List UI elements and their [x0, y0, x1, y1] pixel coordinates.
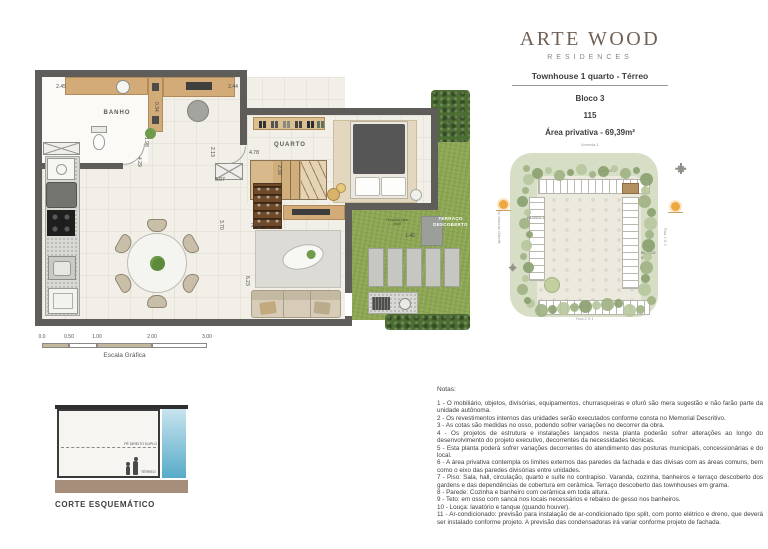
paver	[425, 248, 441, 287]
wall	[345, 203, 438, 210]
note-item: 7 - Piso: Sala, hall, circulação, quarto…	[437, 474, 763, 489]
tree	[643, 252, 652, 261]
schematic-section: PÉ DIREITO DUPLO TÉRREO CORTE ESQUEMÁTIC…	[55, 400, 240, 512]
header: ARTE WOOD RESIDENCES Townhouse 1 quarto …	[495, 28, 685, 137]
wall	[35, 70, 42, 326]
double-height-label: PÉ DIREITO DUPLO	[101, 442, 157, 446]
bathroom-label: BANHO	[87, 110, 147, 116]
tree	[601, 298, 614, 311]
note-item: 5 - Esta planta poderá sofrer variações …	[437, 445, 763, 460]
tree	[633, 167, 640, 174]
note-item: 9 - Teto: em osso com sanca nos locais n…	[437, 496, 763, 503]
kitchen-sink	[48, 256, 76, 280]
dimension: 0.34	[152, 98, 159, 116]
tree	[517, 196, 528, 207]
wall	[345, 316, 352, 326]
washbasin	[116, 80, 130, 94]
floor-plan: TERRAÇO DESCOBERTO Previsão para ofurô B…	[35, 68, 470, 330]
dimension: 2.39	[275, 161, 282, 179]
terrace-sink	[399, 298, 411, 310]
note-item: 10 - Louça: lavatório e tanque (quando h…	[437, 504, 763, 511]
shoe-rack	[253, 117, 325, 130]
tv	[292, 209, 330, 215]
tree	[517, 284, 528, 295]
tree	[589, 171, 596, 178]
note-item: 4 - Os projetos de estrutura e instalaçõ…	[437, 430, 763, 445]
brand-subtitle: RESIDENCES	[495, 54, 685, 61]
note-item: 1 - O mobiliário, objetos, divisórias, e…	[437, 400, 763, 415]
dimension: 4.29	[135, 153, 142, 171]
block-name: Bloco 3	[495, 94, 685, 103]
dimension: 5.47	[444, 113, 451, 131]
pillow	[355, 177, 380, 196]
street-top: Avenida 1	[550, 142, 630, 147]
tree	[644, 217, 657, 230]
toilet-tank	[91, 126, 107, 133]
tree	[640, 173, 653, 186]
fridge	[46, 182, 77, 208]
tree	[519, 218, 530, 229]
block-label: BLOCO 4	[527, 215, 545, 220]
scale-label: Escala Gráfica	[42, 352, 207, 359]
tree	[535, 304, 548, 317]
wall	[431, 108, 438, 210]
centerpiece-plant	[150, 256, 165, 271]
toilet	[90, 126, 108, 158]
tree	[524, 297, 531, 304]
tree	[636, 305, 645, 314]
coffee-table	[280, 240, 327, 273]
scale-segment	[97, 343, 152, 348]
compass-icon	[509, 264, 517, 272]
tree	[523, 174, 534, 185]
terrace-grass-strip	[438, 140, 470, 216]
person-silhouette	[126, 466, 130, 475]
paver	[406, 248, 422, 287]
tree	[642, 239, 655, 252]
dining-chair	[147, 295, 167, 308]
plant	[306, 249, 317, 260]
dimension: 6.23	[243, 272, 250, 290]
dimension: 2.96	[243, 223, 269, 229]
ground-floor-label: TÉRREO	[141, 470, 171, 474]
dimension: 1.98	[142, 133, 149, 151]
wall	[240, 108, 438, 115]
dimension: 3.70	[217, 216, 224, 234]
scale-segment	[69, 343, 97, 348]
sofa	[251, 290, 341, 318]
tree	[557, 302, 570, 315]
sun-icon	[671, 202, 680, 211]
scale-tick: 0.50	[61, 334, 77, 340]
toilet-bowl	[93, 134, 105, 150]
tree	[640, 261, 653, 274]
tree	[520, 253, 527, 260]
section-glazing	[162, 409, 186, 478]
paver	[444, 248, 460, 287]
tree	[638, 283, 651, 296]
bed	[350, 121, 408, 199]
unit-number: 115	[495, 111, 685, 120]
tree	[592, 301, 601, 310]
scale-tick: 3.00	[199, 334, 215, 340]
note-item: 6 - A área privativa contempla os limite…	[437, 459, 763, 474]
bedroom-rug	[333, 120, 417, 203]
dining-table	[127, 233, 187, 293]
dimension: 1.40	[397, 233, 423, 239]
monitor	[186, 82, 212, 90]
tree	[638, 195, 651, 208]
tree	[645, 230, 654, 239]
street-left: Av. Antonio Gabrilli	[497, 210, 502, 270]
shoes	[259, 121, 262, 128]
pillow	[381, 177, 406, 196]
washer	[47, 158, 75, 180]
tree	[614, 299, 623, 308]
scale-tick: 0.0	[34, 334, 50, 340]
wall	[240, 115, 247, 145]
pouf	[327, 188, 340, 201]
note-item: 11 - Ar-condicionado: previsão para inst…	[437, 511, 763, 526]
stair-upper-flight	[301, 161, 326, 199]
cooktop	[47, 210, 75, 236]
tree	[523, 262, 534, 273]
tree	[620, 168, 631, 179]
bedroom-label: QUARTO	[260, 142, 320, 148]
dining-set	[105, 211, 209, 315]
sink-basin	[53, 261, 71, 276]
paver	[368, 248, 384, 287]
person-silhouette	[133, 461, 138, 475]
tree	[548, 305, 557, 314]
tree	[576, 164, 587, 175]
terrace-note: Previsão para ofurô	[383, 218, 411, 226]
throw-pillow	[313, 301, 330, 315]
tree	[647, 208, 656, 217]
notes: Notas: 1 - O mobiliário, objetos, divisó…	[437, 386, 763, 526]
dining-chair	[147, 219, 167, 232]
dimension: 5.07	[207, 177, 233, 183]
notes-title: Notas:	[437, 386, 763, 393]
tree	[523, 165, 530, 172]
tree	[554, 170, 565, 181]
scale-segment	[42, 343, 69, 348]
wall	[35, 70, 247, 77]
double-height-line	[61, 447, 156, 448]
tree	[647, 296, 656, 305]
wall	[35, 319, 352, 326]
tv-console	[283, 205, 345, 220]
scale-tick: 2.00	[144, 334, 160, 340]
tree	[545, 167, 552, 174]
brochure-page: ARTE WOOD RESIDENCES Townhouse 1 quarto …	[0, 0, 768, 549]
site-plan: Avenida 1 Av. Antonio Gabrilli Rua 2 S 2…	[495, 140, 735, 330]
nightstand	[410, 189, 422, 201]
bathroom-cabinet	[43, 142, 80, 155]
speaker	[152, 116, 159, 124]
shoes	[283, 121, 286, 128]
private-area: Área privativa - 69,39m²	[495, 128, 685, 137]
paver	[387, 248, 403, 287]
laundry-tank	[48, 288, 78, 314]
tree	[611, 165, 618, 172]
terrace-label: TERRAÇO DESCOBERTO	[431, 216, 470, 228]
courtyard-garden	[544, 277, 560, 293]
shoes	[307, 121, 310, 128]
washer-door	[56, 164, 67, 175]
dimension: 4.78	[241, 150, 267, 156]
highlighted-unit-115	[622, 183, 639, 194]
throw-pillow	[259, 301, 277, 315]
street-right: Rua 2 S 2	[663, 228, 668, 268]
terrace-hedge-bottom	[385, 314, 470, 330]
tree	[522, 275, 529, 282]
note-item: 3 - As cotas são medidas no osso, podend…	[437, 422, 763, 429]
section-title: CORTE ESQUEMÁTICO	[55, 500, 240, 509]
tree	[579, 300, 592, 313]
tree	[526, 231, 533, 238]
desk-chair	[187, 100, 209, 122]
section-ground	[55, 480, 188, 493]
tree	[641, 186, 650, 195]
tree	[570, 303, 579, 312]
tree	[524, 209, 531, 216]
wall	[345, 203, 352, 293]
note-item: 2 - Os revestimentos internos das unidad…	[437, 415, 763, 422]
bathroom-vanity	[65, 77, 148, 95]
dimension: 2.44	[221, 84, 245, 90]
scale-segment	[152, 343, 207, 348]
grill	[372, 297, 390, 310]
shoes	[317, 121, 320, 128]
unit-type: Townhouse 1 quarto - Térreo	[512, 71, 668, 86]
scale-tick: 1.00	[89, 334, 105, 340]
living-rug	[255, 230, 341, 288]
dimension: 2.13	[208, 143, 215, 161]
speaker	[152, 83, 159, 91]
tree	[641, 274, 650, 283]
sun-icon	[499, 200, 508, 209]
tree	[521, 240, 532, 251]
tree	[623, 304, 636, 317]
tree	[567, 169, 574, 176]
shoes	[295, 121, 298, 128]
tank-basin	[53, 293, 73, 309]
dimension: 2.45	[49, 84, 73, 90]
tree	[598, 166, 609, 177]
site-block: BLOCO 2 BLOCO 4 BLOCO 3 BLOCO 1	[510, 153, 658, 317]
scale-bar: 0.0 0.50 1.00 2.00 3.00 Escala Gráfica	[40, 334, 215, 360]
shoes	[271, 121, 274, 128]
bed-duvet	[353, 124, 405, 174]
brand-logo: ARTE WOOD	[495, 28, 685, 51]
units-col-right	[622, 197, 639, 289]
note-item: 8 - Parede: Cozinha e banheiro com cerâm…	[437, 489, 763, 496]
compass-icon	[675, 163, 686, 174]
barbecue-counter	[368, 292, 418, 314]
tree	[522, 187, 529, 194]
